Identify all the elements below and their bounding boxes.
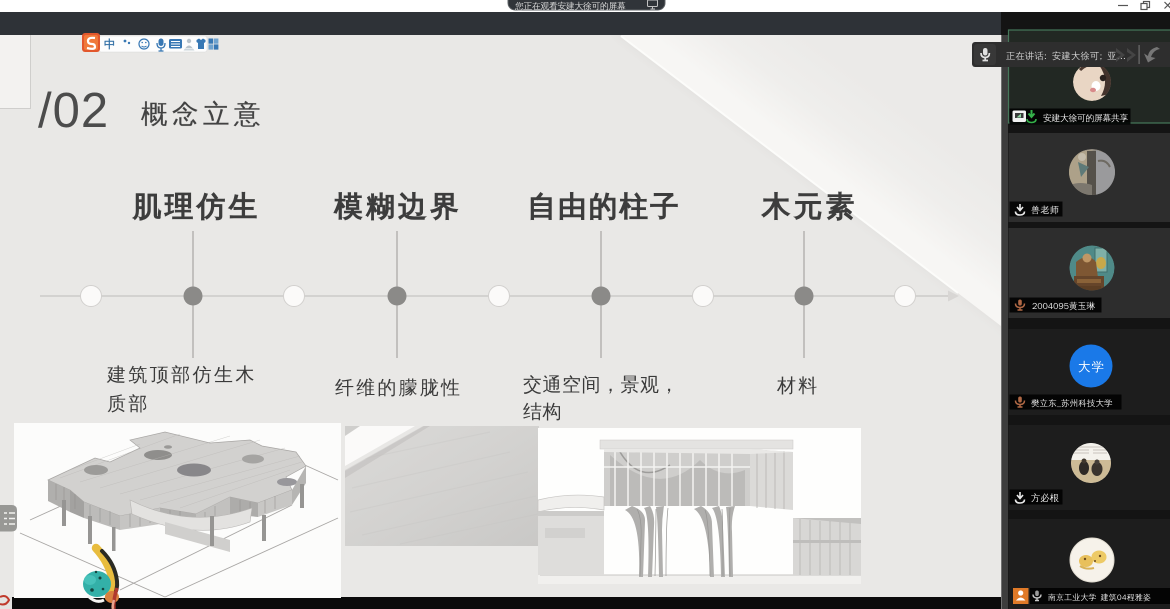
svg-text:/02: /02 — [38, 84, 109, 138]
